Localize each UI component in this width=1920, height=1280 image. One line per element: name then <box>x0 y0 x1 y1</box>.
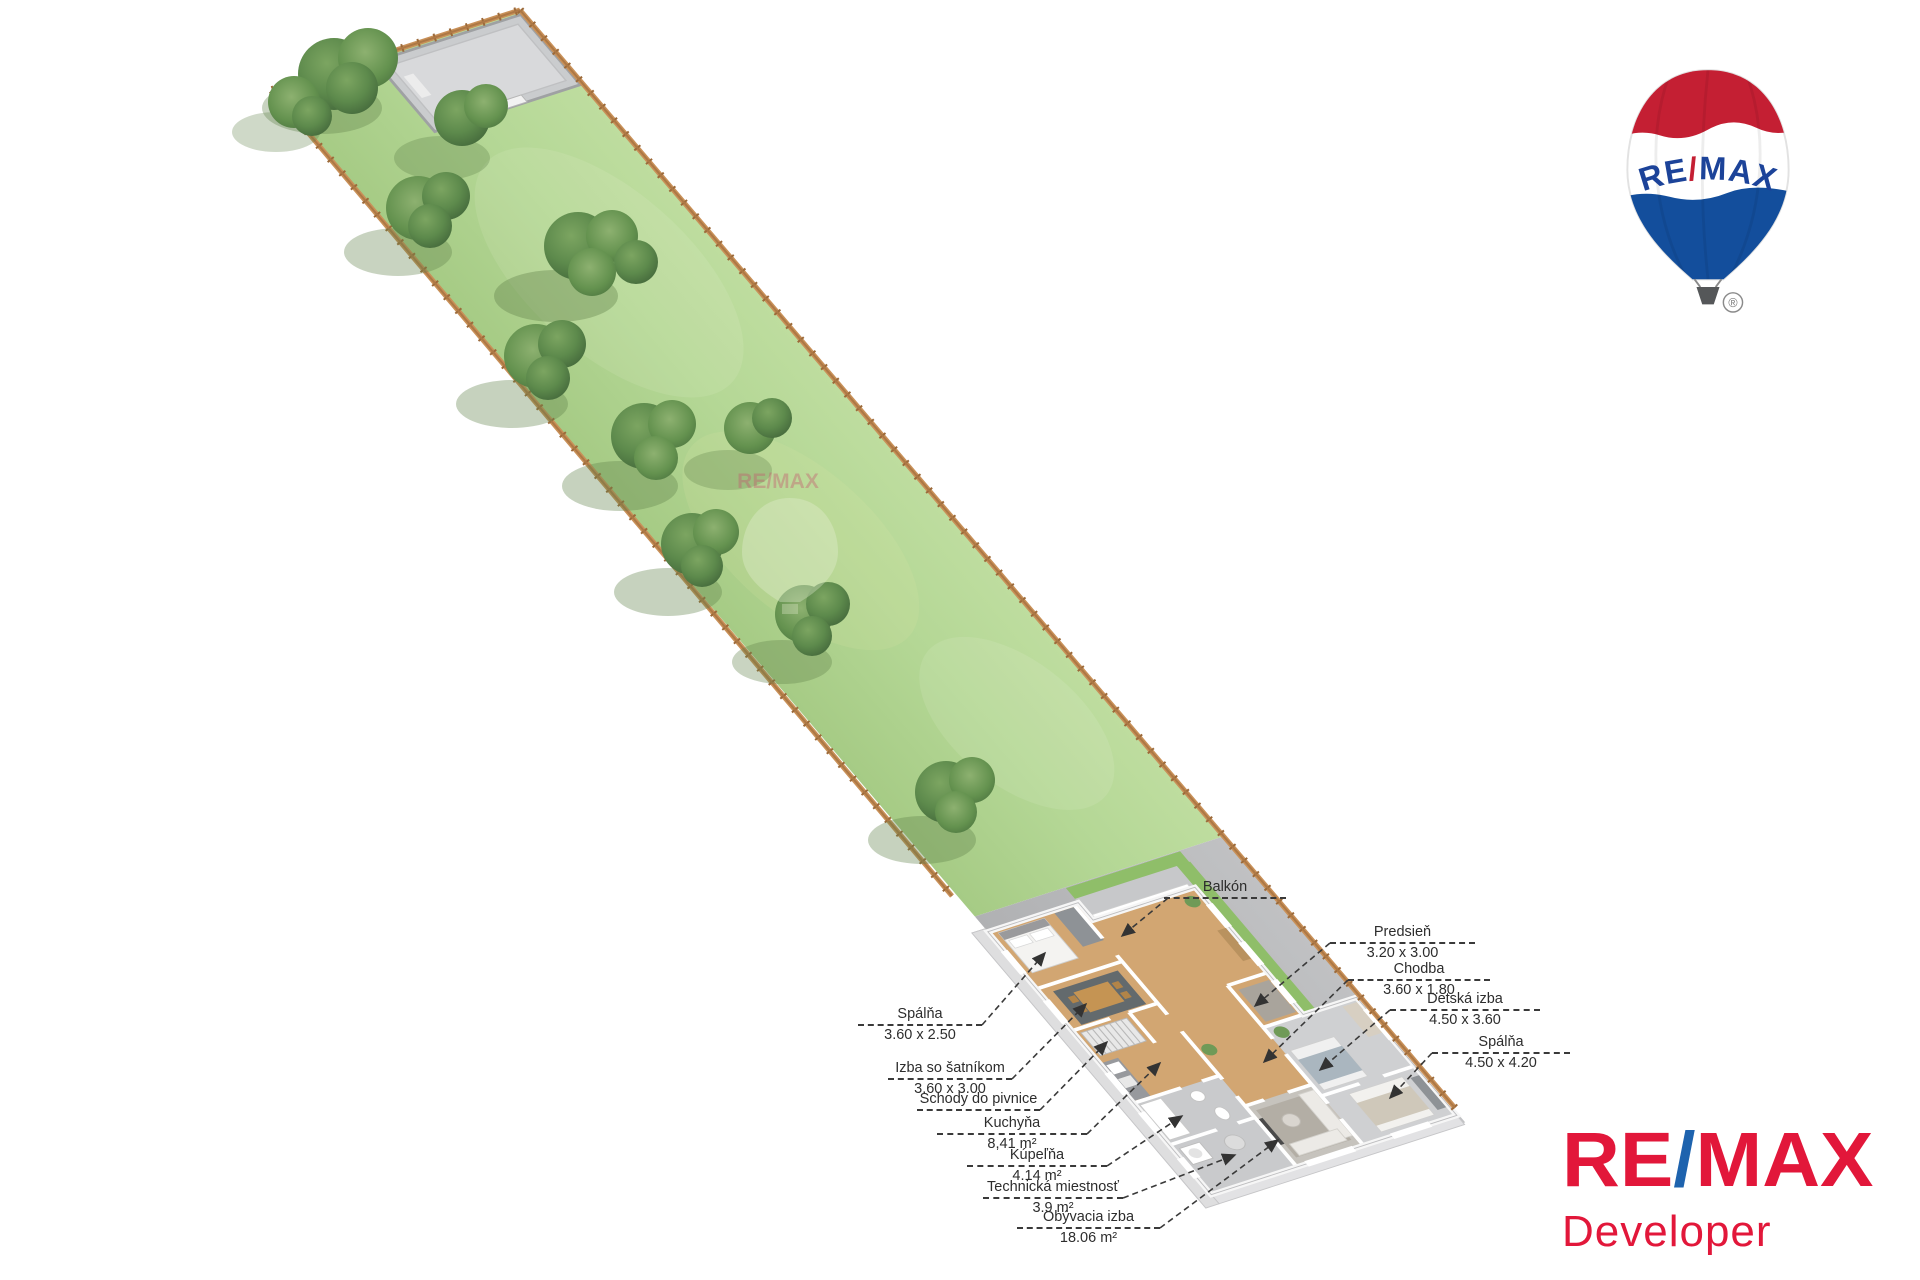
balloon-basket <box>1696 287 1719 304</box>
room-label-title: Kuchyňa <box>937 1115 1087 1135</box>
leader-chodba <box>1264 980 1348 1062</box>
room-label-title: Balkón <box>1164 879 1286 899</box>
room-label-schody-do-pivnice: Schody do pivnice <box>917 1091 1040 1111</box>
balloon-ropes <box>1695 279 1722 287</box>
wordmark-re: RE <box>1562 1117 1673 1203</box>
room-label-title: Detská izba <box>1390 991 1540 1011</box>
room-label-title: Spálňa <box>858 1006 982 1026</box>
room-label-dims: 4.50 x 3.60 <box>1390 1011 1540 1029</box>
leader-izba-so-satnikom <box>1012 1004 1086 1079</box>
room-label-obyvacia-izba: Obývacia izba 18.06 m² <box>1017 1209 1160 1247</box>
room-label-spalna-2: Spálňa 4.50 x 4.20 <box>1432 1034 1570 1072</box>
room-label-title: Technická miestnosť <box>983 1179 1123 1199</box>
leader-spalna-1 <box>982 953 1045 1025</box>
leader-spalna-2 <box>1390 1053 1432 1098</box>
leader-obyvacia <box>1160 1140 1278 1228</box>
room-label-spalna-1: Spálňa 3.60 x 2.50 <box>858 1006 982 1044</box>
room-label-title: Schody do pivnice <box>917 1091 1040 1111</box>
room-label-title: Chodba <box>1348 961 1490 981</box>
leader-detska <box>1320 1010 1390 1070</box>
room-label-title: Predsieň <box>1330 924 1475 944</box>
registered-mark: ® <box>1728 296 1737 310</box>
floorplan-scene: RE/MAX Balkón <box>0 0 1920 1280</box>
wordmark-slash: / <box>1673 1117 1695 1203</box>
room-label-detska-izba: Detská izba 4.50 x 3.60 <box>1390 991 1540 1029</box>
developer-subtitle: Developer <box>1562 1207 1920 1257</box>
remax-developer-logo: RE/MAX Developer <box>1562 1116 1920 1257</box>
remax-balloon-icon: RE/MAX ® <box>1612 64 1804 320</box>
room-label-title: Spálňa <box>1432 1034 1570 1054</box>
leader-technicka <box>1123 1155 1235 1198</box>
room-label-dims: 3.20 x 3.00 <box>1330 944 1475 962</box>
leader-predsien <box>1255 943 1330 1006</box>
leader-balkon <box>1122 898 1168 936</box>
remax-wordmark: RE/MAX <box>1562 1116 1920 1205</box>
room-label-dims: 4.50 x 4.20 <box>1432 1054 1570 1072</box>
leader-kupelna <box>1107 1116 1182 1166</box>
room-label-title: Obývacia izba <box>1017 1209 1160 1229</box>
room-label-predsien: Predsieň 3.20 x 3.00 <box>1330 924 1475 962</box>
room-label-title: Izba so šatníkom <box>888 1060 1012 1080</box>
remax-balloon-logo: RE/MAX ® <box>1612 64 1804 320</box>
room-label-dims: 18.06 m² <box>1017 1229 1160 1247</box>
room-label-balkon: Balkón <box>1164 879 1286 899</box>
leader-kuchyna <box>1087 1063 1160 1134</box>
room-label-title: Kúpeľňa <box>967 1147 1107 1167</box>
leader-schody <box>1040 1042 1107 1110</box>
wordmark-max: MAX <box>1696 1117 1874 1203</box>
room-label-dims: 3.60 x 2.50 <box>858 1026 982 1044</box>
